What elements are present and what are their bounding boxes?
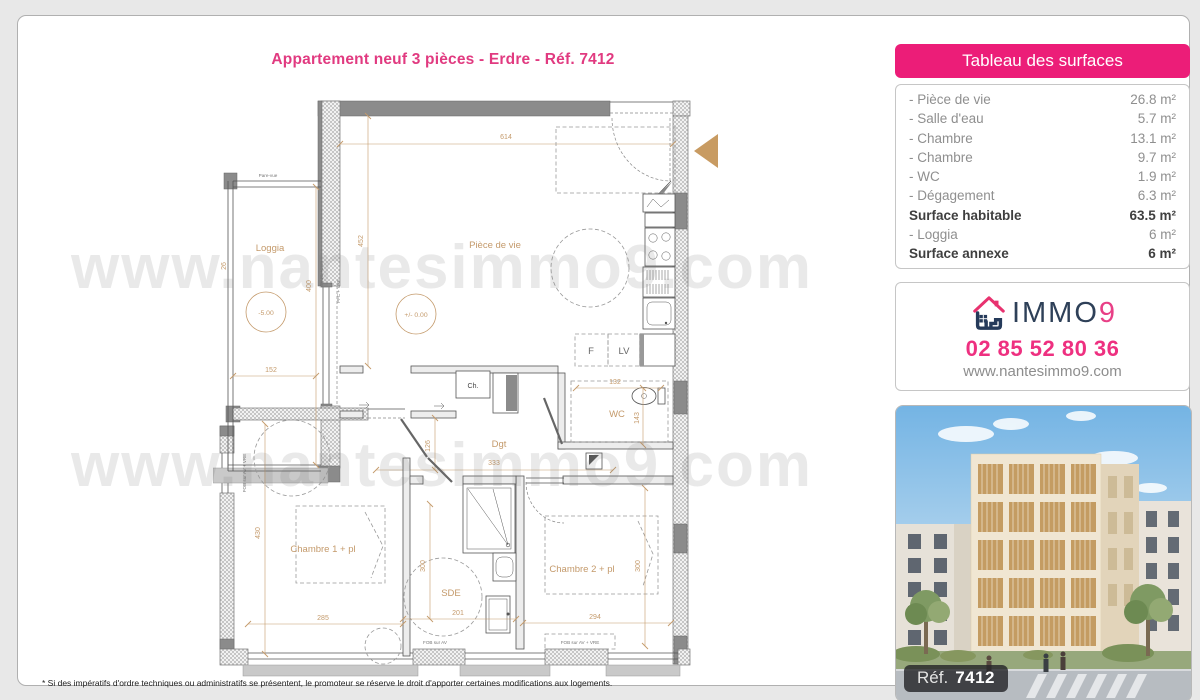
dim-dgt-h: 126 [425, 440, 432, 452]
closet: Ch. [340, 366, 558, 418]
surfaces-table: - Pièce de vie 26.8 m² - Salle d'eau 5.7… [895, 84, 1190, 269]
main-building [971, 454, 1139, 661]
table-row-total-habitable: Surface habitable 63.5 m² [896, 206, 1189, 225]
annotation-seuil: SEUIL +2cm [319, 261, 324, 287]
degagement: Dgt 126 333 [376, 418, 673, 649]
table-row: - Chambre 13.1 m² [896, 129, 1189, 148]
row-value: 63.5 m² [1129, 206, 1176, 225]
table-row: - Dégagement 6.3 m² [896, 186, 1189, 205]
room-label-sde: SDE [441, 588, 461, 599]
main-card: Appartement neuf 3 pièces - Erdre - Réf.… [17, 15, 1190, 686]
row-label: - Chambre [909, 129, 973, 148]
dim-dgt-w: 333 [488, 460, 500, 467]
wc-room: 132 WC 143 [544, 373, 673, 449]
table-row: - Salle d'eau 5.7 m² [896, 109, 1189, 128]
footnote: * Si des impératifs d'ordre techniques o… [42, 678, 612, 688]
salle-eau: SDE 300 201 FOB sur AV [403, 476, 516, 645]
row-label: - Loggia [909, 225, 958, 244]
row-label: Surface habitable [909, 206, 1022, 225]
contact-card: IMMO9 02 85 52 80 36 www.nantesimmo9.com [895, 282, 1190, 391]
dim-bed1-w: 285 [317, 615, 329, 622]
dim-loggia-h: 400 [306, 280, 313, 292]
row-value: 1.9 m² [1138, 167, 1176, 186]
row-label: - WC [909, 167, 940, 186]
row-value: 26.8 m² [1130, 90, 1176, 109]
label-fridge: F [588, 346, 594, 357]
room-label-dgt: Dgt [492, 439, 507, 450]
page: Appartement neuf 3 pièces - Erdre - Réf.… [0, 0, 1200, 700]
brand-name: IMMO [1012, 297, 1099, 330]
row-label: - Salle d'eau [909, 109, 984, 128]
row-value: 6.3 m² [1138, 186, 1176, 205]
row-label: - Chambre [909, 148, 973, 167]
table-row: - Pièce de vie 26.8 m² [896, 90, 1189, 109]
website-link[interactable]: www.nantesimmo9.com [896, 363, 1189, 380]
room-label-living: Pièce de vie [469, 240, 521, 251]
page-title: Appartement neuf 3 pièces - Erdre - Réf.… [108, 51, 778, 69]
row-value: 6 m² [1149, 225, 1176, 244]
dim-sde-w: 201 [452, 610, 464, 617]
building-render [896, 406, 1191, 700]
building-photo: Réf.7412 [895, 405, 1192, 700]
row-label: Surface annexe [909, 244, 1009, 263]
room-label-bedroom1: Chambre 1 + pl [290, 544, 355, 555]
bedroom-2: Chambre 2 + pl 300 294 FOB sur AV + VRE [523, 488, 671, 649]
table-row: - Loggia 6 m² [896, 225, 1189, 244]
dim-living-w: 614 [500, 134, 512, 141]
ref-value: 7412 [955, 668, 995, 687]
annotation-fob-left: FOB sur AV + VRE [242, 454, 247, 493]
living-room: Pièce de vie +/- 0.00 614 452 [340, 116, 673, 366]
dim-sde-h: 300 [420, 560, 427, 572]
entry-arrow-icon [694, 134, 718, 168]
kitchen: F LV [556, 127, 675, 366]
ref-label: Réf. [917, 668, 948, 687]
row-value: 9.7 m² [1138, 148, 1176, 167]
table-row: - WC 1.9 m² [896, 167, 1189, 186]
room-label-bedroom2: Chambre 2 + pl [549, 564, 614, 575]
floor-plan: Pare-vue Loggia -5.00 400 152 26 SEUIL +… [213, 96, 723, 681]
house-icon [970, 294, 1008, 332]
table-row: - Chambre 9.7 m² [896, 148, 1189, 167]
label-dishwasher: LV [619, 346, 631, 357]
level-loggia: -5.00 [258, 310, 274, 317]
row-value: 13.1 m² [1130, 129, 1176, 148]
dim-wc-h: 143 [634, 412, 641, 424]
dim-living-h: 452 [358, 235, 365, 247]
brand-logo: IMMO9 [896, 294, 1189, 332]
level-living: +/- 0.00 [404, 312, 427, 319]
dim-bed1-h: 430 [255, 527, 262, 539]
room-label-wc: WC [609, 409, 625, 420]
annotation-pfc-vre: PFC + VRE [336, 279, 341, 303]
dim-bed2-h: 300 [635, 560, 642, 572]
row-label: - Pièce de vie [909, 90, 991, 109]
brand-digit: 9 [1099, 297, 1115, 330]
room-label-loggia: Loggia [256, 243, 285, 254]
row-value: 5.7 m² [1138, 109, 1176, 128]
table-row-total-annexe: Surface annexe 6 m² [896, 244, 1189, 263]
phone-number[interactable]: 02 85 52 80 36 [896, 336, 1189, 362]
dim-loggia-d: 26 [221, 262, 228, 270]
dim-loggia-w: 152 [265, 367, 277, 374]
photo-ref-badge: Réf.7412 [904, 665, 1008, 692]
surfaces-header: Tableau des surfaces [895, 44, 1190, 78]
annotation-fob-sde: FOB sur AV [423, 640, 448, 645]
row-label: - Dégagement [909, 186, 995, 205]
dim-wc-w: 132 [609, 379, 621, 386]
label-water-heater: Ch. [468, 383, 479, 390]
annotation-fob-bed2: FOB sur AV + VRE [561, 640, 600, 645]
row-value: 6 m² [1148, 244, 1176, 263]
dim-bed2-w: 294 [589, 614, 601, 621]
floor-plan-svg: Pare-vue Loggia -5.00 400 152 26 SEUIL +… [213, 96, 723, 681]
annotation-pare-vue: Pare-vue [259, 173, 278, 178]
